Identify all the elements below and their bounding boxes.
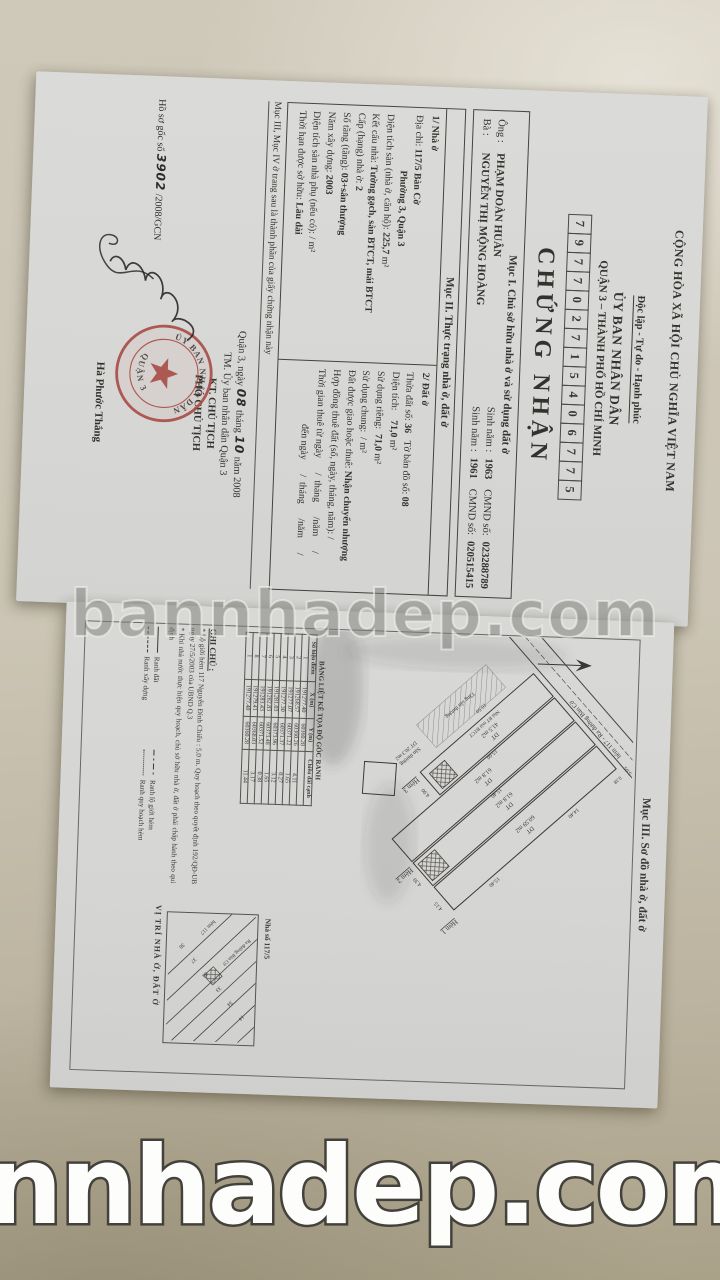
common-use-label: Sử dụng chung: <box>358 370 371 432</box>
private-use-value: 71,0 <box>372 434 384 452</box>
tenure-label: Thời hạn được sở hữu: <box>293 110 307 200</box>
storeys-value: 03+sân thượng <box>336 173 349 236</box>
col-x: X (m) <box>307 681 316 718</box>
certificate-footer: Hồ sơ gốc số 3902 /2008/GCN Quận 3, ngày… <box>76 83 268 601</box>
sign-year: 2008 <box>230 477 242 498</box>
serial-digit: 7 <box>566 251 591 272</box>
serial-digit: 1 <box>562 346 587 367</box>
serial-digit: 0 <box>560 403 585 424</box>
owner2-birth-year: 1961 <box>467 458 479 479</box>
aux-floor-unit: m² <box>306 241 317 252</box>
land-area-label: Diện tích: <box>388 371 400 410</box>
owner2-label: Bà : <box>480 118 492 152</box>
floor-area-value: 225,7 <box>380 232 392 254</box>
owner1-birth-year: 1963 <box>482 458 494 479</box>
tenure-value: Lâu dài <box>292 202 304 235</box>
file-number-label: Hồ sơ gốc số <box>155 99 168 152</box>
dashdot-line-icon <box>152 750 154 776</box>
serial-digit: 4 <box>561 384 586 405</box>
serial-digit: 7 <box>568 213 593 234</box>
house-column: 1/ Nhà ở Địa chỉ: 117/5 Bàn Cờ Phường 3,… <box>279 103 447 366</box>
build-year-label: Năm xây dựng: <box>324 111 337 172</box>
grant-value: Nhận chuyển nhượng <box>338 471 352 562</box>
plot-value: 36 <box>402 423 413 433</box>
map-sheet-label: Tờ bản đồ số: <box>400 440 413 494</box>
sign-month: 10 <box>232 435 247 454</box>
dotted-line-icon <box>142 750 145 776</box>
land-area-unit: m² <box>387 440 398 451</box>
file-number-value: 3902 <box>153 154 168 192</box>
grade-value: 2 <box>353 186 364 191</box>
siteplan-drawing: hẻm 117 - Ra đường Bàn Cờ DT60.59 m2 DT6… <box>291 630 636 1087</box>
siteplan-paper: Mục III. Sơ đồ nhà ở, đất ở <box>50 602 675 1109</box>
inset-lot-34: 34 <box>225 999 233 1007</box>
owner1-birth-label: Sinh năm : <box>483 407 496 453</box>
owner2-birth-label: Sinh năm : <box>468 406 481 452</box>
inset-street2-label: Ra đường Bàn Cờ <box>221 938 251 967</box>
common-use-unit: m² <box>357 442 368 453</box>
photo-background: CỘNG HÒA XÃ HỘI CHỦ NGHĨA VIỆT NAM Độc l… <box>0 0 720 1280</box>
house-number-label: Nhà số 117/5 <box>262 919 272 960</box>
grade-label: Cấp (hạng) nhà ở: <box>353 113 367 184</box>
serial-digit: 7 <box>559 441 584 462</box>
structure-label: Kết cấu nhà: <box>368 113 381 163</box>
build-year-value: 2003 <box>323 175 335 195</box>
aux-floor-value: / <box>307 236 318 239</box>
common-use-value: / <box>358 437 369 440</box>
serial-digit: 2 <box>564 308 589 329</box>
alley1-label: Hẻm 1 <box>439 918 459 937</box>
serial-digit: 7 <box>563 327 588 348</box>
serial-digit: 5 <box>557 479 582 500</box>
lot1-area-label: DT60.59 m2 <box>514 813 541 840</box>
plot-label: Thửa đất số: <box>403 372 416 421</box>
location-inset-map: hẻm 117 Ra đường Bàn Cờ 14 34 33 36 37 3… <box>162 911 259 1046</box>
inset-lot-37: 37 <box>189 956 197 964</box>
sign-day: 08 <box>234 389 249 408</box>
section1-owners-box: Mục I. Chủ sở hữu nhà ở và sử dụng đất ở… <box>455 109 531 599</box>
dim-4-15: 4.15 <box>433 900 444 911</box>
land-area-value: 71,0 <box>387 420 399 438</box>
lease-contract-value: / <box>325 536 336 539</box>
siteplan-page: Mục III. Sơ đồ nhà ở, đất ở <box>59 612 665 1098</box>
certificate-paper: CỘNG HÒA XÃ HỘI CHỦ NGHĨA VIỆT NAM Độc l… <box>16 71 708 626</box>
watermark-bottom: nnhadep.com <box>0 1124 720 1249</box>
map-sheet-value: 08 <box>399 497 410 507</box>
private-use-label: Sử dụng riêng: <box>373 371 386 429</box>
serial-digit: 7 <box>558 460 583 481</box>
serial-digit: 6 <box>560 422 585 443</box>
alley3-label: Hẻm 3 <box>401 776 421 795</box>
serial-digit: 9 <box>567 232 592 253</box>
grant-label: Đất được giao hoặc thuê: <box>342 370 357 469</box>
floor-area-unit: m² <box>379 256 390 267</box>
dim-15-40a: 15.40 <box>487 875 500 888</box>
street-label: hẻm 117 - Ra đường Bàn Cờ <box>568 698 623 759</box>
dim-4-90: 4.90 <box>421 787 432 798</box>
address-label: Địa chỉ: <box>413 115 425 147</box>
hatched-structure-2 <box>429 760 457 788</box>
serial-digit: 7 <box>565 270 590 291</box>
certificate-page: CỘNG HÒA XÃ HỘI CHỦ NGHĨA VIỆT NAM Độc l… <box>22 81 701 618</box>
lot3-area-label: DT61.8 m2 <box>473 766 498 791</box>
inset-street-label: hẻm 117 <box>198 918 216 935</box>
inset-lot-33: 33 <box>214 985 222 993</box>
owner1-label: Ông : <box>495 119 507 153</box>
dim-14-40: 14.40 <box>566 806 579 819</box>
national-motto-line1: CỘNG HÒA XÃ HỘI CHỦ NGHĨA VIỆT NAM <box>657 105 692 617</box>
plan-notes: GHI CHÚ : * Lộ giới hẻm 117 Nguyễn Đình … <box>135 626 219 884</box>
inset-lot-38: 38 <box>177 941 185 949</box>
national-motto-line2: Độc lập - Tự do - Hạnh phúc <box>628 295 646 424</box>
section2-status-box: Mục II. Thực trạng nhà ở, đất ở 1/ Nhà ở… <box>269 102 466 597</box>
dim-0-38: 0.38 <box>612 775 622 785</box>
land-column: 2/ Đất ở Thửa đất số: 36 Tờ bản đồ số: 0… <box>270 360 437 595</box>
col-y: Y (m) <box>305 718 314 751</box>
storeys-label: Số tầng (tầng): <box>339 112 352 171</box>
address-line1: 117/5 Bàn Cờ <box>411 149 424 205</box>
owner2-id-label: CMND số: <box>465 488 478 535</box>
private-use-unit: m² <box>372 453 383 464</box>
watermark-center: bannhadep.com <box>70 578 660 652</box>
col-length: Chiều dài cạnh <box>304 751 313 805</box>
coordinate-table: BẢNG LIỆT KÊ TỌA ĐỘ GÓC RANH Số hiệu điể… <box>240 632 327 807</box>
owner1-id-label: CMND số: <box>480 489 493 536</box>
serial-digit: 5 <box>562 365 587 386</box>
dim-4-39: 4.39 <box>412 876 423 887</box>
serial-digit: 0 <box>565 289 590 310</box>
toner-smudge-3 <box>363 782 415 904</box>
